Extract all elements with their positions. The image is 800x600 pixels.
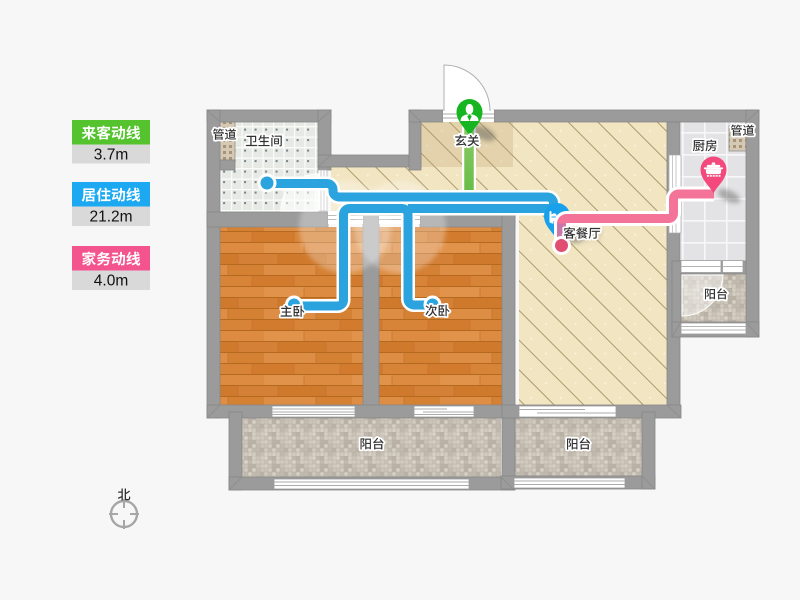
svg-text:3.7m: 3.7m (94, 147, 128, 164)
svg-text:4.0m: 4.0m (94, 273, 128, 290)
svg-text:21.2m: 21.2m (89, 209, 132, 226)
